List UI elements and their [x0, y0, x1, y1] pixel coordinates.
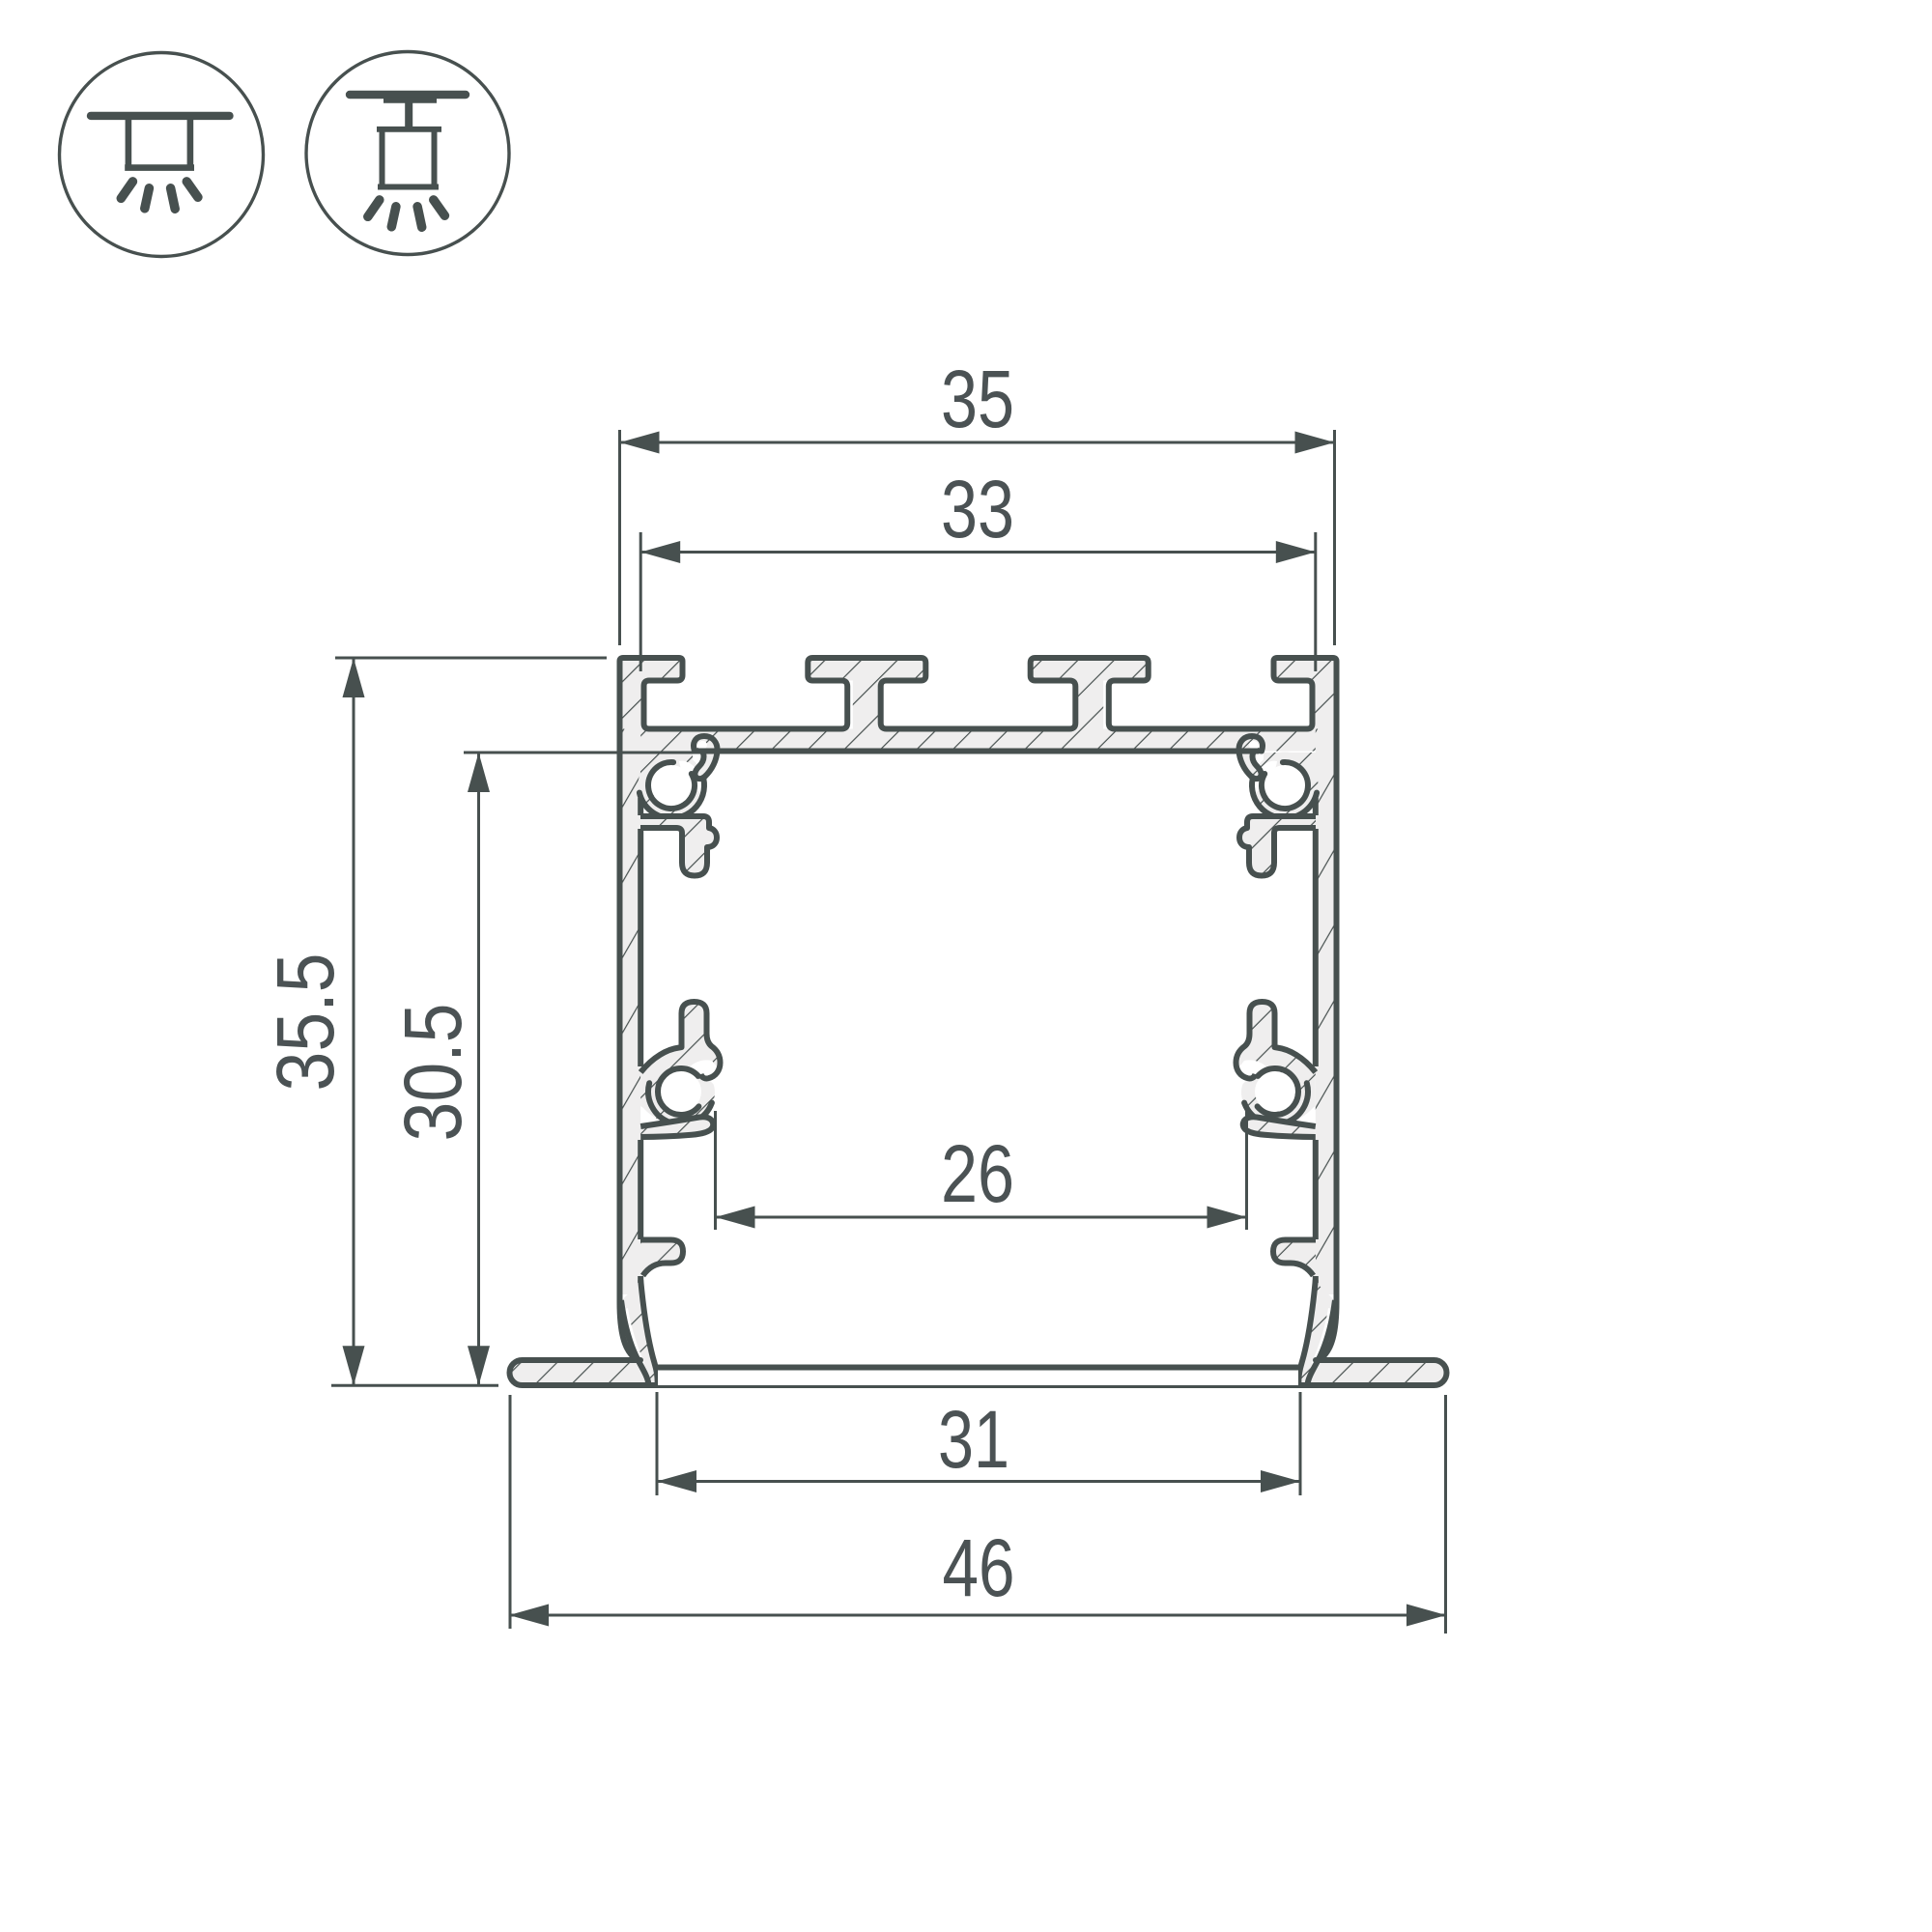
svg-text:35.5: 35.5 [260, 953, 351, 1092]
svg-text:35: 35 [941, 354, 1014, 444]
svg-text:30.5: 30.5 [387, 1004, 478, 1142]
svg-text:31: 31 [938, 1394, 1009, 1485]
svg-text:26: 26 [941, 1128, 1014, 1219]
svg-text:33: 33 [941, 464, 1014, 554]
svg-text:46: 46 [943, 1522, 1015, 1613]
